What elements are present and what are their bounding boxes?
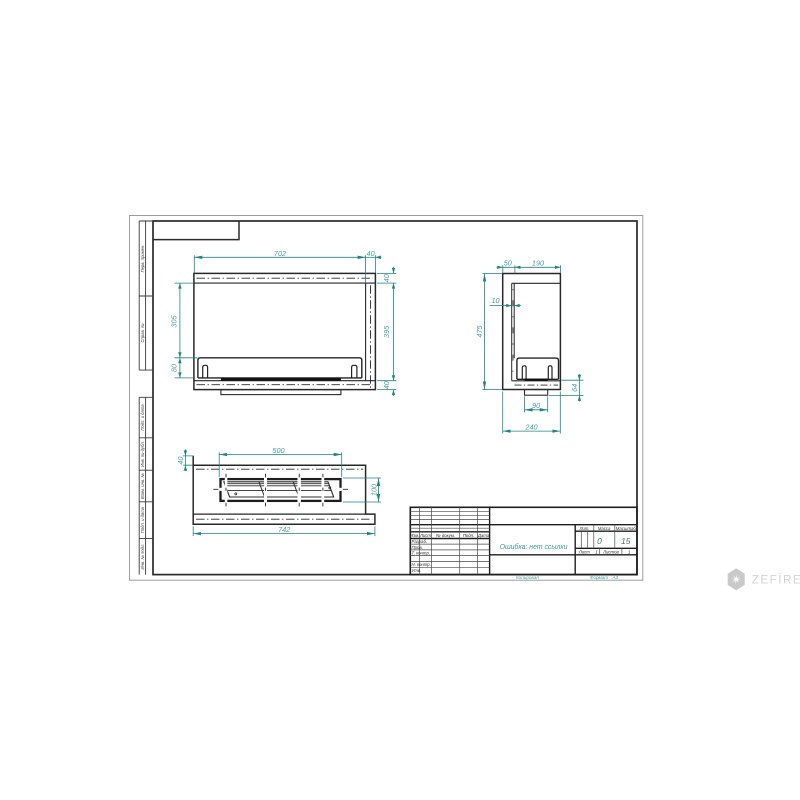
- svg-text:702: 702: [274, 249, 286, 258]
- svg-text:395: 395: [382, 325, 391, 338]
- svg-text:40: 40: [382, 274, 391, 282]
- svg-text:Взам. инв. №: Взам. инв. №: [140, 473, 145, 499]
- svg-text:190: 190: [532, 259, 544, 268]
- svg-text:А3: А3: [611, 575, 618, 580]
- svg-text:90: 90: [532, 401, 540, 410]
- svg-text:Т. контр.: Т. контр.: [412, 550, 431, 555]
- svg-text:Ошибка: нет ссылки: Ошибка: нет ссылки: [500, 543, 568, 551]
- svg-text:Разраб.: Разраб.: [412, 539, 428, 544]
- svg-text:ZEFİRE: ZEFİRE: [752, 573, 800, 587]
- svg-text:Лист: Лист: [419, 533, 431, 538]
- svg-text:Дата: Дата: [477, 533, 490, 538]
- svg-text:0: 0: [597, 536, 602, 546]
- svg-text:40: 40: [382, 381, 391, 389]
- svg-text:Пров.: Пров.: [412, 545, 423, 550]
- svg-text:Формат: Формат: [590, 575, 608, 580]
- svg-text:742: 742: [278, 525, 290, 534]
- svg-text:Перв. примен.: Перв. примен.: [140, 245, 145, 273]
- svg-text:240: 240: [524, 422, 537, 431]
- svg-text:Лит.: Лит.: [578, 526, 589, 531]
- svg-text:10: 10: [491, 296, 499, 305]
- svg-text:305: 305: [170, 314, 179, 327]
- svg-text:№ докум.: № докум.: [436, 533, 455, 538]
- svg-text:Листов: Листов: [602, 550, 619, 555]
- svg-text:Изм.: Изм.: [410, 533, 419, 538]
- svg-text:64: 64: [570, 384, 579, 392]
- svg-text:Подп.: Подп.: [463, 533, 474, 538]
- svg-text:Подп. и дата: Подп. и дата: [140, 404, 145, 431]
- svg-text:Инв. № подл.: Инв. № подл.: [140, 544, 145, 570]
- svg-text:15: 15: [621, 536, 631, 546]
- svg-text:Инв. № дубл.: Инв. № дубл.: [140, 441, 145, 467]
- svg-text:50: 50: [504, 259, 512, 268]
- svg-text:500: 500: [272, 446, 284, 455]
- svg-text:Масса: Масса: [598, 526, 611, 531]
- svg-text:Н. контр.: Н. контр.: [412, 562, 431, 567]
- svg-text:80: 80: [170, 364, 179, 372]
- svg-text:40: 40: [176, 457, 185, 465]
- svg-text:Масштаб: Масштаб: [616, 526, 637, 531]
- svg-text:Справ. №: Справ. №: [140, 323, 145, 342]
- svg-text:475: 475: [475, 324, 484, 337]
- svg-text:Лист: Лист: [578, 550, 590, 555]
- svg-text:40: 40: [367, 249, 375, 258]
- svg-text:Утв.: Утв.: [412, 568, 422, 573]
- svg-text:Копировал: Копировал: [516, 575, 539, 580]
- svg-text:100: 100: [370, 484, 379, 496]
- svg-text:Подп. и дата: Подп. и дата: [140, 506, 145, 533]
